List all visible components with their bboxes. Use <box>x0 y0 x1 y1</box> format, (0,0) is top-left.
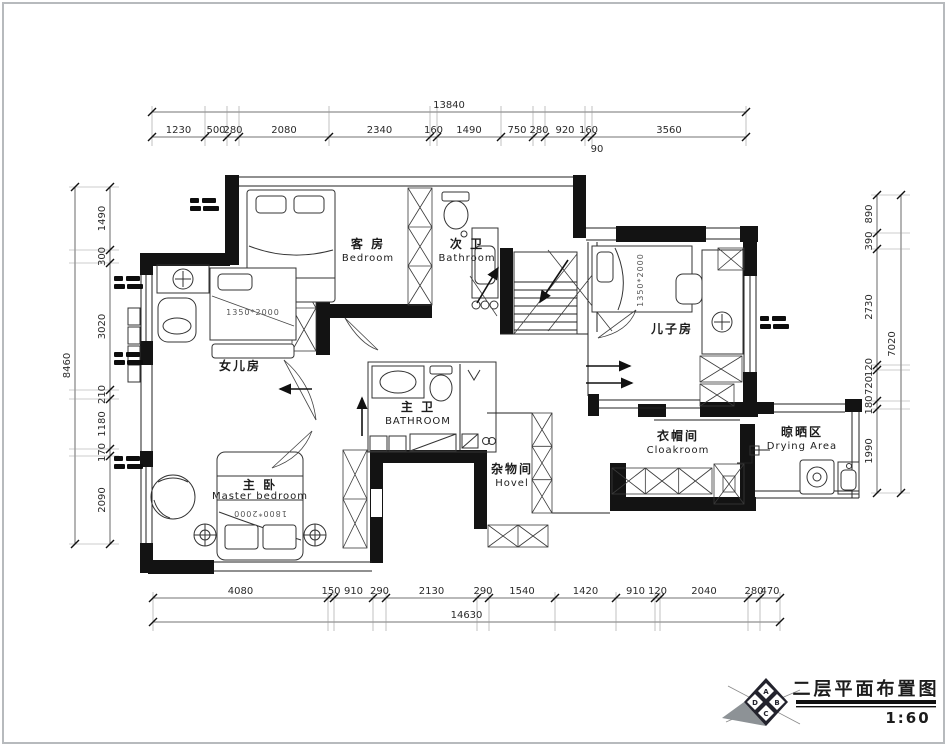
label-daughter-room-cn: 女儿房 <box>219 358 261 373</box>
dim-label-top-7: 750 <box>507 125 526 136</box>
label-master-bed-size: 1800*2000 <box>233 509 287 518</box>
dim-label-right-3: 120 <box>864 358 875 377</box>
dim-label-top-9: 920 <box>555 125 574 136</box>
bedside-lamp-icon <box>304 524 326 546</box>
logo-letter-d: D <box>752 699 758 707</box>
label-drying-en: Drying Area <box>767 441 837 452</box>
dim-label-right-5: 180 <box>864 395 875 414</box>
logo-letter-b: B <box>774 699 779 707</box>
dim-label-right-2: 2730 <box>864 294 875 319</box>
dim-label-left-5: 170 <box>97 443 108 462</box>
label-master-bath-en: BATHROOM <box>385 416 451 427</box>
bedside-lamp-icon <box>194 524 216 546</box>
washing-machine-icon <box>800 460 834 494</box>
dim-label-left-6: 2090 <box>97 487 108 512</box>
dim-label-left-3: 210 <box>97 385 108 404</box>
logo-letter-c: C <box>763 710 768 718</box>
dim-label-top-10: 160 <box>579 125 598 136</box>
dim-label-bottom-1: 150 <box>321 586 340 597</box>
master-bath-toilet-icon <box>430 366 452 401</box>
dim-label-top-0: 1230 <box>166 125 191 136</box>
label-cloakroom-en: Cloakroom <box>647 445 710 456</box>
dim-total-bottom: 14630 <box>451 610 483 621</box>
dim-total-top: 13840 <box>433 100 465 111</box>
label-son-room-cn: 儿子房 <box>650 321 693 336</box>
daughter-armchair <box>158 298 196 342</box>
dim-label-right-1: 390 <box>864 231 875 250</box>
drawing-scale: 1:60 <box>885 709 930 727</box>
drawing-title: 二层平面布置图 <box>793 678 940 700</box>
dim-label-left-1: 300 <box>97 247 108 266</box>
label-master-bedroom-cn: 主 卧 <box>243 477 277 492</box>
label-drying-cn: 晾晒区 <box>781 424 823 439</box>
dim-label-bottom-5: 290 <box>473 586 492 597</box>
dim-label-top-2: 280 <box>223 125 242 136</box>
dim-label-bottom-8: 910 <box>626 586 645 597</box>
dim-label-top-8: 280 <box>529 125 548 136</box>
label-master-bath-cn: 主 卫 <box>401 399 435 414</box>
dim-label-bottom-7: 1420 <box>573 586 598 597</box>
dim-label-bottom-2: 910 <box>344 586 363 597</box>
dim-label-top-4: 2340 <box>367 125 392 136</box>
dim-label-bottom-0: 4080 <box>228 586 253 597</box>
guest-bath-toilet-icon <box>442 192 469 229</box>
dim-label-right-6: 1990 <box>864 438 875 463</box>
dim-label-bottom-6: 1540 <box>509 586 534 597</box>
logo-letter-a: A <box>763 688 769 696</box>
label-cloakroom-cn: 衣帽间 <box>657 428 699 443</box>
dim-total-right: 7020 <box>887 331 898 356</box>
dim-label-right-0: 890 <box>864 204 875 223</box>
dim-label-top-11: 3560 <box>656 125 681 136</box>
dim-label-bottom-9: 120 <box>648 586 667 597</box>
dim-extra-90: 90 <box>591 144 604 155</box>
label-son-bed-size: 1350*2000 <box>636 253 645 307</box>
dim-label-bottom-4: 2130 <box>419 586 444 597</box>
sheet-border <box>3 3 944 743</box>
dim-label-top-5: 160 <box>424 125 443 136</box>
label-guest-bedroom-cn: 客 房 <box>350 236 385 251</box>
dim-label-left-4: 1180 <box>97 411 108 436</box>
label-storage-cn: 杂物间 <box>491 461 533 476</box>
dim-label-left-0: 1490 <box>97 206 108 231</box>
floor-plan-drawing: 1230500280208023401601490750280920160356… <box>0 0 947 746</box>
dim-label-bottom-10: 2040 <box>691 586 716 597</box>
title-rule <box>796 700 936 704</box>
dim-label-right-4: 720 <box>864 376 875 395</box>
label-guest-bath-en: Bathroom <box>438 253 495 264</box>
label-guest-bedroom-en: Bedroom <box>342 253 394 264</box>
label-guest-bath-cn: 次 卫 <box>450 236 484 251</box>
floor-plan-sheet: 1230500280208023401601490750280920160356… <box>0 0 947 746</box>
dim-label-top-3: 2080 <box>271 125 296 136</box>
dim-label-top-6: 1490 <box>456 125 481 136</box>
label-storage-en: Hovel <box>495 478 529 489</box>
label-daughter-bed-size: 1350*2000 <box>226 308 280 317</box>
dim-total-left: 8460 <box>62 353 73 378</box>
dim-label-left-2: 3020 <box>97 314 108 339</box>
dim-label-bottom-12: 470 <box>760 586 779 597</box>
dim-label-bottom-3: 290 <box>370 586 389 597</box>
label-master-bedroom-en: Master bedroom <box>212 491 308 502</box>
